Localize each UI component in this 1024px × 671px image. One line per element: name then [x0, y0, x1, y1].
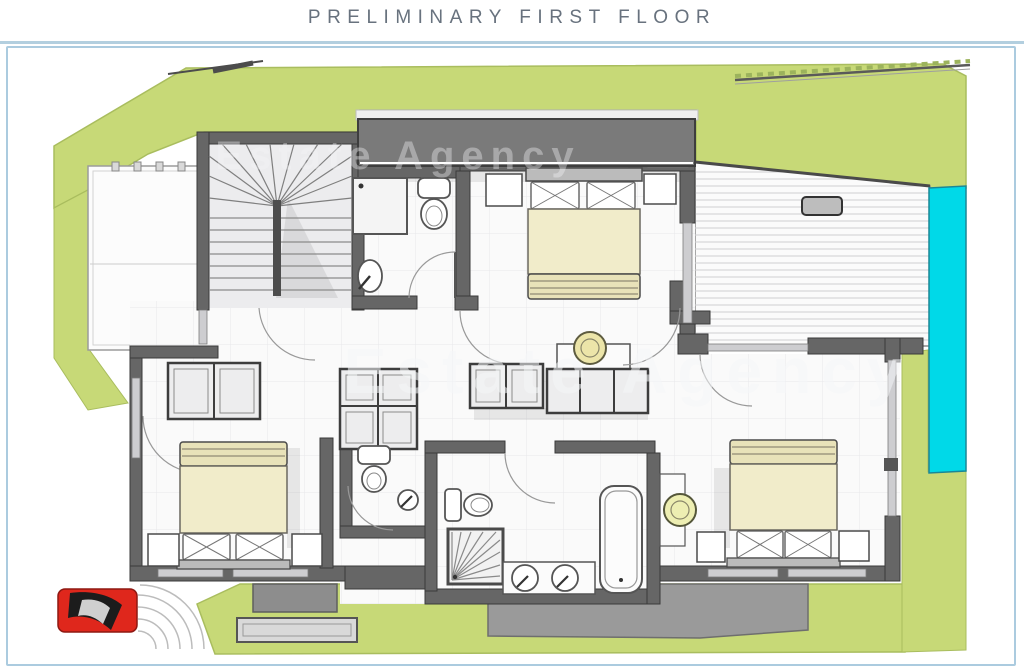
page-title: PRELIMINARY FIRST FLOOR — [0, 7, 1024, 29]
garden-table — [237, 618, 357, 642]
nightstand — [292, 534, 322, 566]
nightstand — [486, 174, 522, 206]
bed-icon — [727, 440, 840, 567]
nightstand — [148, 534, 179, 566]
railing-post — [884, 458, 898, 471]
washbasin-icon — [398, 490, 418, 510]
title-divider — [0, 41, 1024, 44]
wardrobe-icon — [340, 369, 417, 449]
wardrobe-icon — [168, 363, 260, 419]
bathtub-icon — [600, 486, 642, 593]
corner-shower-icon — [448, 529, 503, 584]
chair-icon — [664, 494, 696, 526]
shower-icon — [353, 178, 407, 234]
car — [58, 589, 137, 632]
floor-plan-drawing — [8, 48, 1014, 664]
wardrobe-icon — [547, 369, 648, 413]
floor-plan-frame: Estate Agency Estate Agency — [6, 46, 1016, 666]
deck-planter — [802, 197, 842, 215]
nightstand — [644, 174, 676, 204]
nightstand — [839, 531, 869, 561]
wood-deck — [695, 162, 930, 346]
canopy-roof — [356, 110, 698, 166]
washbasin-icon — [358, 260, 382, 292]
wardrobe-icon — [470, 364, 543, 408]
chair-icon — [574, 332, 606, 364]
swimming-pool — [929, 186, 966, 473]
double-washbasin-icon — [503, 562, 595, 594]
nightstand — [697, 532, 725, 562]
stair-rail — [273, 200, 281, 296]
page: { "header": { "title": "PRELIMINARY FIRS… — [0, 0, 1024, 671]
driveway-arcs — [138, 585, 204, 649]
